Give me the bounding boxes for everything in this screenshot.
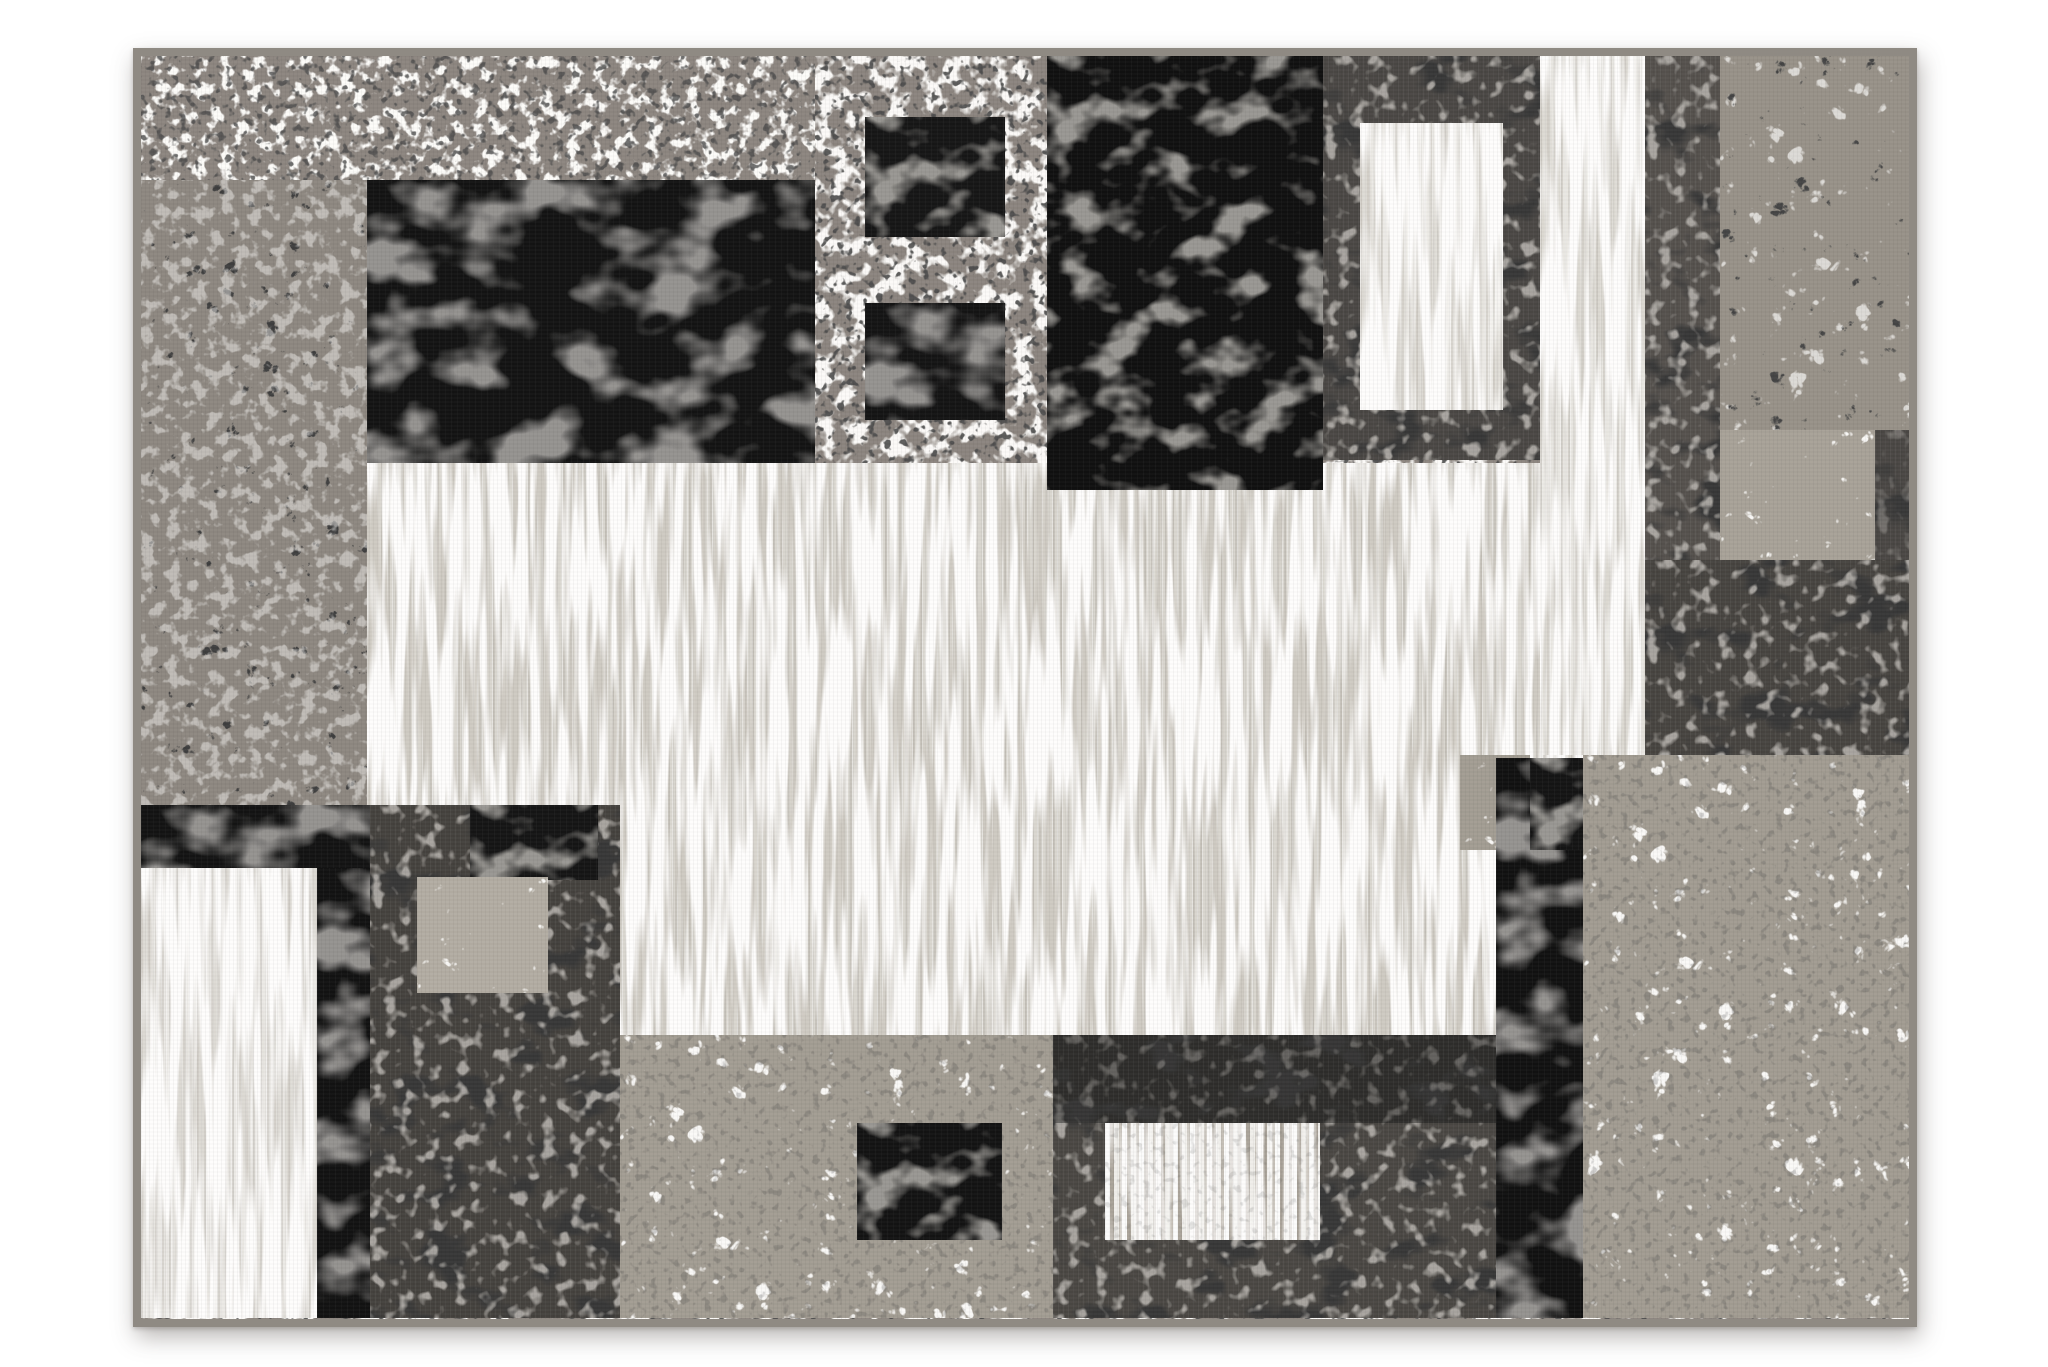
rug-block-black-column-bottomleft [317, 868, 370, 1318]
rug-interior-weave [141, 56, 1909, 1319]
rug-block-left-crackle-column [141, 180, 367, 805]
rug-block-black-patch-bottomleft [470, 805, 598, 880]
rug-block-black-band-left [141, 805, 370, 868]
rug-block-dark-strip-bottomcenter [1053, 1035, 1496, 1123]
rug-block-black-main [367, 180, 815, 463]
rug-block-marble-square-topright [1720, 430, 1875, 560]
rug-block-small-black-square-1 [865, 117, 1005, 237]
area-rug [133, 48, 1917, 1327]
rug-block-white-framed-rect [1360, 123, 1503, 410]
rug-block-marble-bottomright [1583, 755, 1909, 1318]
rug-block-white-stripe-column [1540, 56, 1645, 755]
rug-block-black-column-top [1047, 56, 1323, 490]
rug-block-light-inset-bottomleft [417, 877, 548, 993]
rug-block-white-column-left [141, 868, 317, 1318]
rug-block-black-square-bottom [857, 1123, 1002, 1240]
rug-block-marble-column-topright [1720, 56, 1909, 430]
rug-block-white-striped-inset [1105, 1123, 1320, 1240]
product-photo-stage [0, 0, 2048, 1367]
rug-block-small-black-square-2 [865, 303, 1005, 420]
rug-block-dark-right [1645, 560, 1909, 755]
